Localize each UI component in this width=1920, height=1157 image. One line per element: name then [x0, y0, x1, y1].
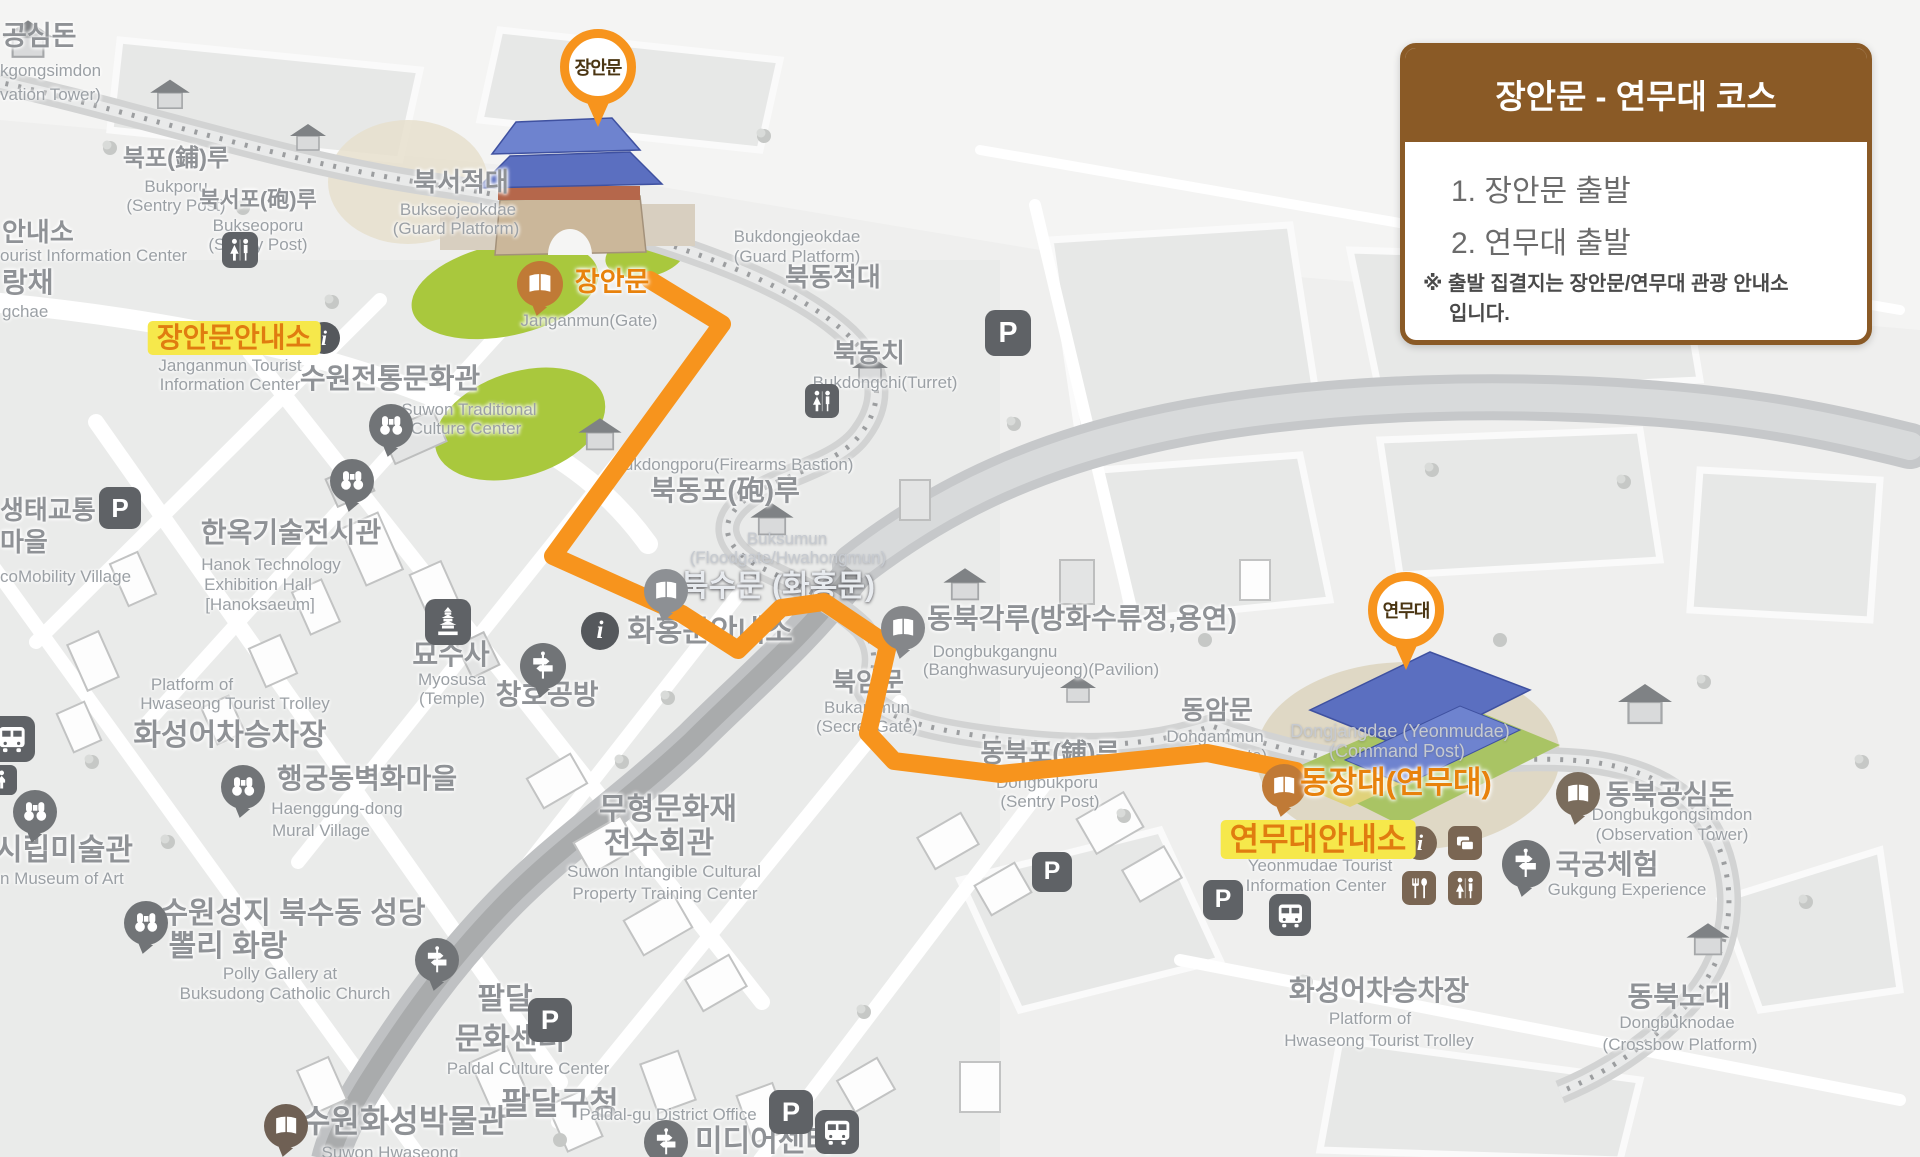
course-title: 장안문 - 연무대 코스: [1405, 48, 1867, 142]
course-step-1: 1. 장안문 출발: [1451, 166, 1853, 210]
hwaseong-course-map: 공심돈kgongsimdonvation Tower)북포(鋪)루Bukporu…: [0, 0, 1920, 1157]
course-info-panel: 장안문 - 연무대 코스 1. 장안문 출발 2. 연무대 출발 ※ 출발 집결…: [1400, 43, 1872, 345]
course-note-line1: ※ 출발 집결지는 장안문/연무대 관광 안내소: [1423, 272, 1853, 297]
course-step-2: 2. 연무대 출발: [1451, 218, 1853, 262]
course-note-line2: 입니다.: [1449, 297, 1853, 326]
